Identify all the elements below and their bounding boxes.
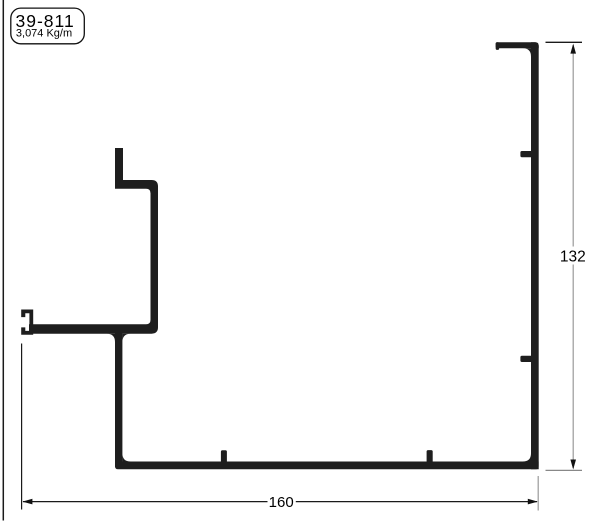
svg-text:3,074 Kg/m: 3,074 Kg/m <box>16 28 72 40</box>
svg-text:132: 132 <box>560 248 586 265</box>
svg-text:160: 160 <box>269 494 294 511</box>
